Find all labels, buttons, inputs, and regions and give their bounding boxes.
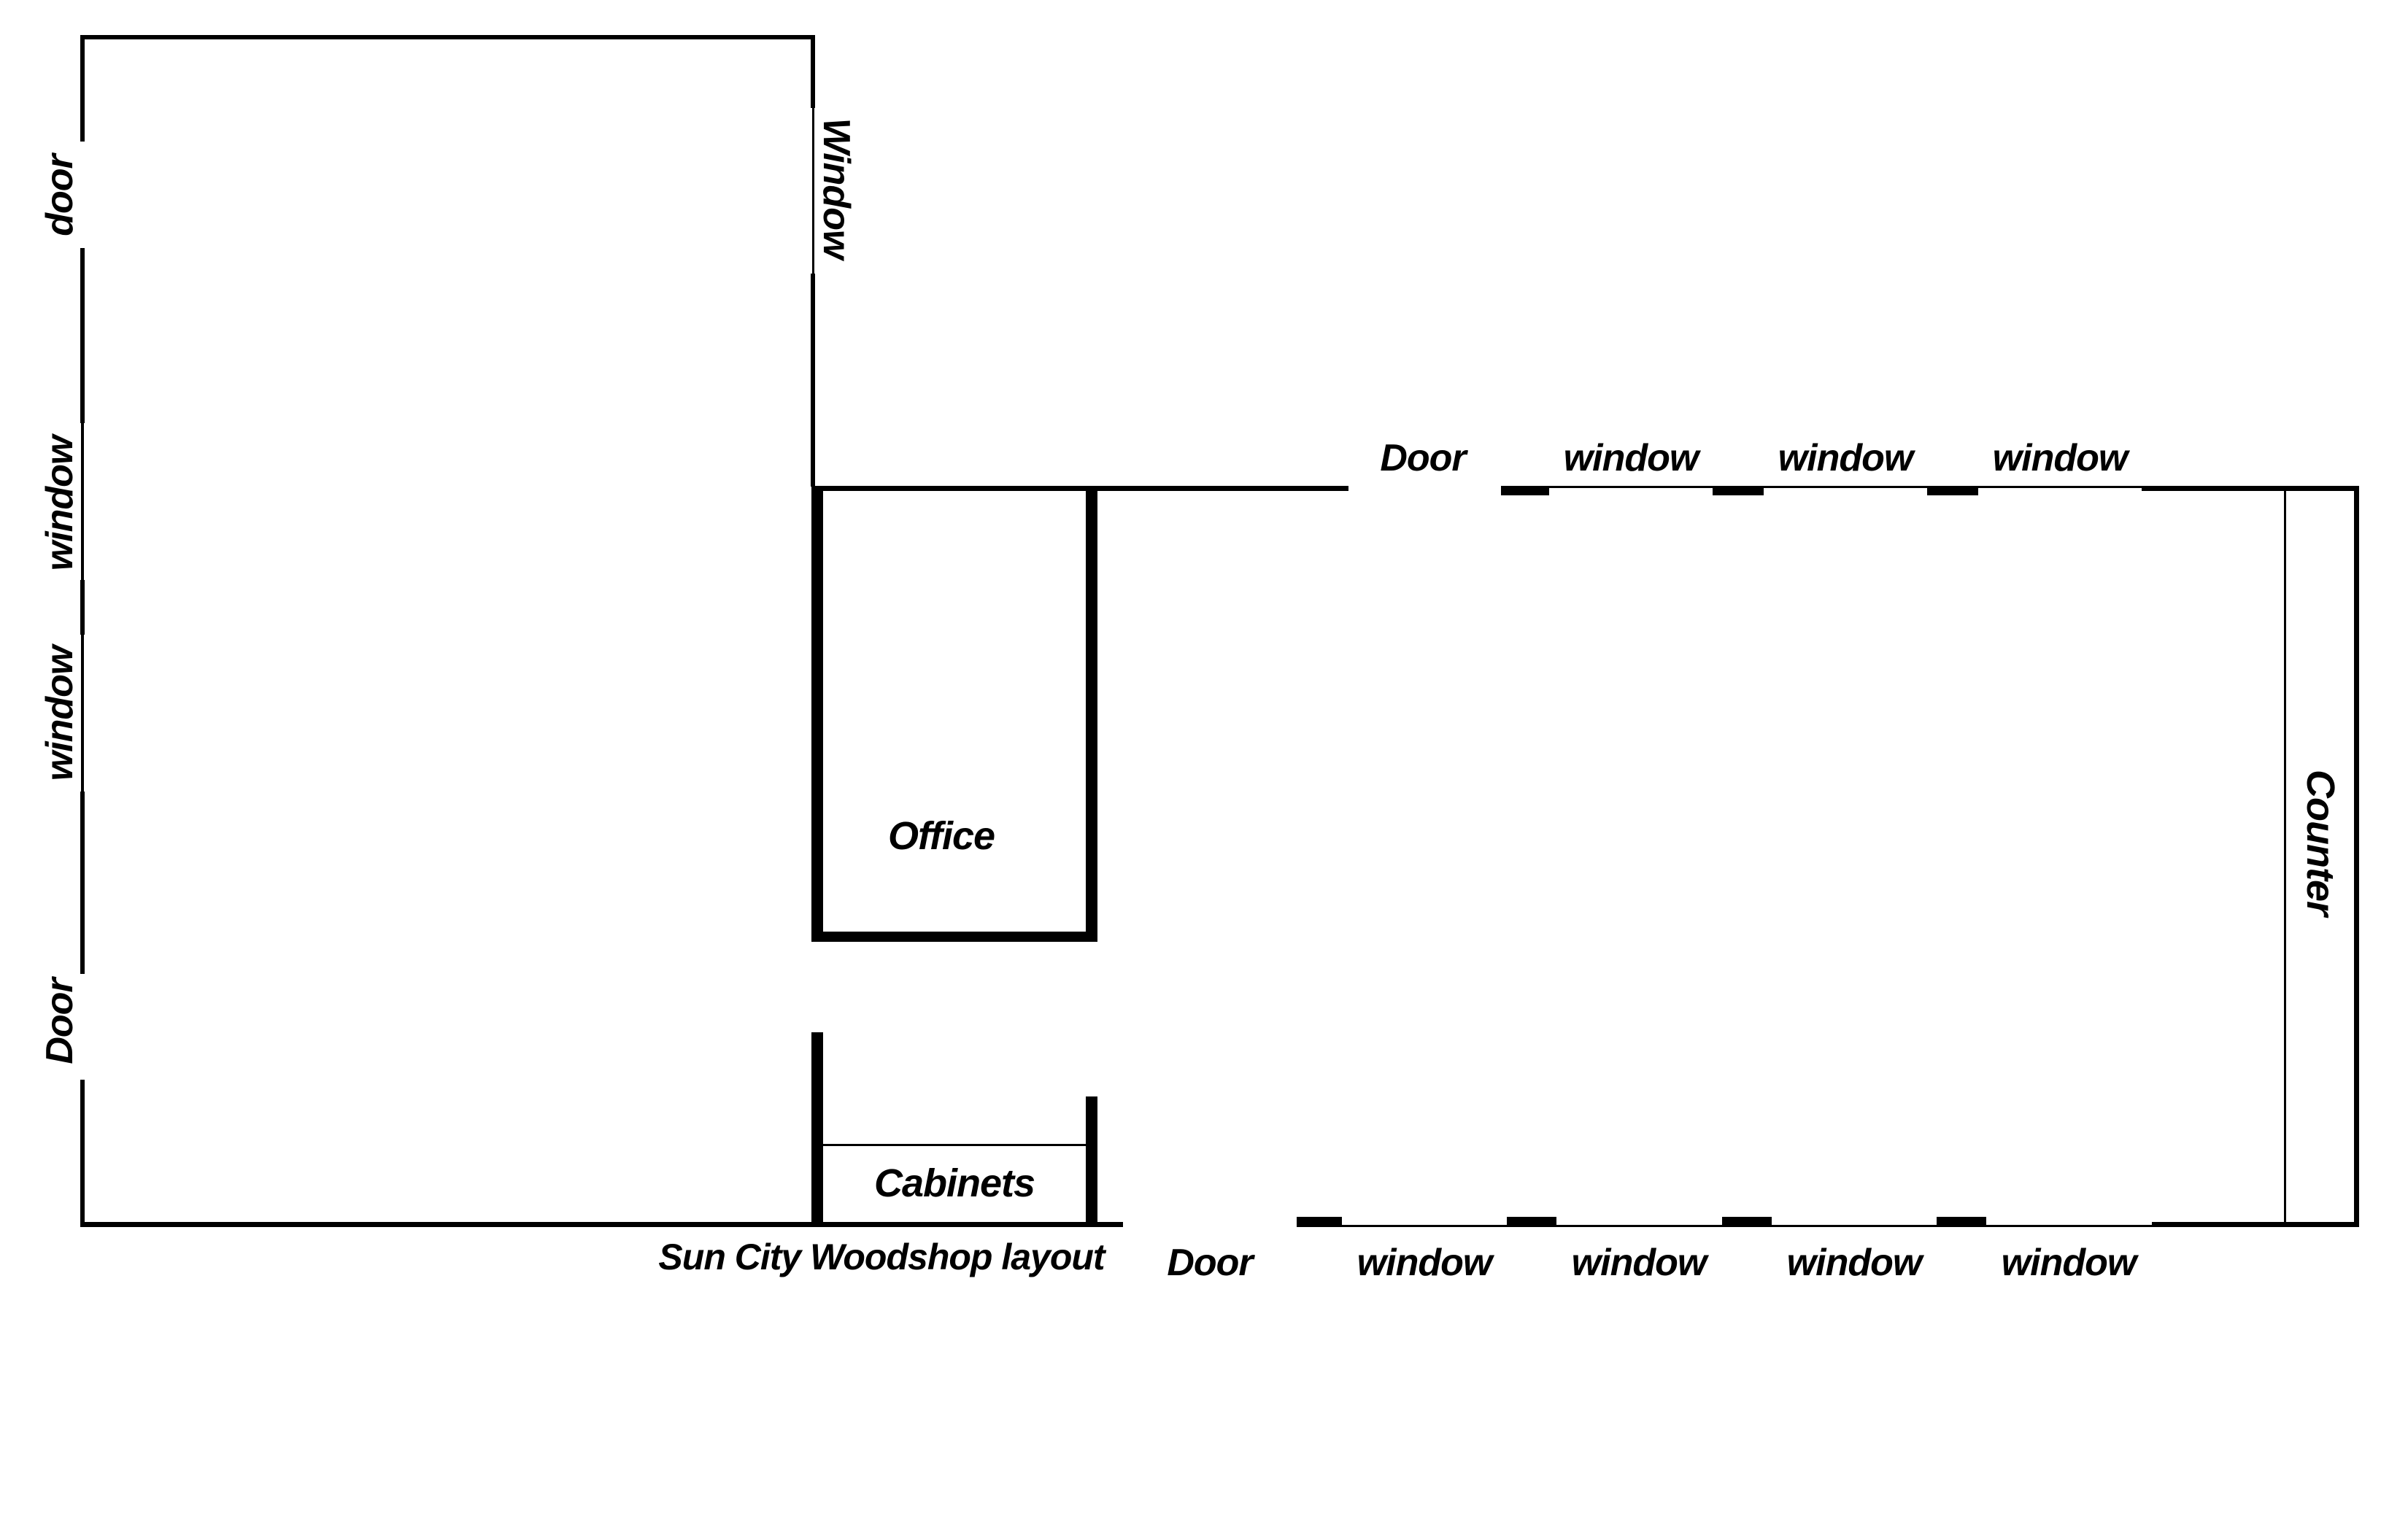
shop-right-wall: [2354, 486, 2359, 1227]
left-wall-segment-1: [80, 35, 85, 142]
shop-top-wall-segment-2: [2142, 486, 2358, 491]
left-door-top-label: door: [38, 155, 82, 236]
cabinets-left-wall: [811, 1032, 823, 1224]
shop-top-wall-pier-3: [1927, 486, 1978, 495]
shop-top-window-line-2: [1764, 486, 1927, 488]
shop-bottom-wall-pier-1: [1297, 1217, 1342, 1227]
shop-bottom-wall-pier-3: [1722, 1217, 1772, 1227]
divider-window-label: Window: [814, 118, 858, 259]
shop-top-window-line-1: [1549, 486, 1713, 488]
shop-top-window-line-3: [1978, 486, 2142, 488]
left-room-bottom-wall: [80, 1222, 1123, 1227]
shop-bottom-wall-segment: [2152, 1222, 2358, 1227]
divider-wall-segment-top: [811, 35, 815, 108]
shop-top-window-1-label: window: [1564, 436, 1699, 480]
shop-bottom-window-3-label: window: [1787, 1241, 1922, 1285]
counter-label: Counter: [2298, 770, 2343, 916]
page-title: Sun City Woodshop layout: [658, 1236, 1104, 1278]
counter-line: [2284, 486, 2286, 1225]
left-wall-segment-3: [80, 580, 85, 635]
office-bottom-wall: [811, 932, 1097, 942]
shop-bottom-wall-pier-2: [1507, 1217, 1556, 1227]
left-room-top-wall: [80, 35, 815, 39]
divider-wall-segment-bottom: [811, 274, 815, 487]
shop-bottom-wall-pier-4: [1937, 1217, 1986, 1227]
office-right-wall: [1086, 486, 1097, 942]
left-wall-segment-2: [80, 248, 85, 423]
shop-top-wall-pier-2: [1713, 486, 1764, 495]
shop-top-window-3-label: window: [1993, 436, 2128, 480]
shop-bottom-window-4-label: window: [2002, 1241, 2137, 1285]
shop-bottom-window-1-label: window: [1357, 1241, 1492, 1285]
floor-plan: door window window Door Window Door wind…: [0, 0, 2408, 1532]
shop-bottom-door-label: Door: [1167, 1241, 1252, 1285]
shop-top-wall-segment-1: [1097, 486, 1348, 491]
office-label: Office: [888, 813, 995, 859]
shop-bottom-window-line-1: [1342, 1225, 1507, 1227]
shop-bottom-window-line-3: [1772, 1225, 1937, 1227]
left-window-2-label: window: [38, 646, 82, 781]
office-top-wall: [811, 486, 1097, 491]
shop-bottom-window-line-2: [1556, 1225, 1722, 1227]
office-left-wall: [811, 486, 823, 942]
shop-bottom-window-2-label: window: [1572, 1241, 1707, 1285]
cabinets-front-line: [823, 1144, 1086, 1146]
shop-top-door-label: Door: [1380, 436, 1465, 480]
left-window-1-label: window: [38, 436, 82, 571]
cabinets-right-wall: [1086, 1096, 1097, 1224]
cabinets-label: Cabinets: [874, 1161, 1035, 1206]
shop-bottom-window-line-4: [1986, 1225, 2152, 1227]
left-door-bottom-label: Door: [38, 978, 82, 1064]
left-wall-segment-5: [80, 1080, 85, 1224]
shop-top-window-2-label: window: [1778, 436, 1913, 480]
shop-top-wall-pier-1: [1501, 486, 1549, 495]
left-wall-segment-4: [80, 792, 85, 974]
